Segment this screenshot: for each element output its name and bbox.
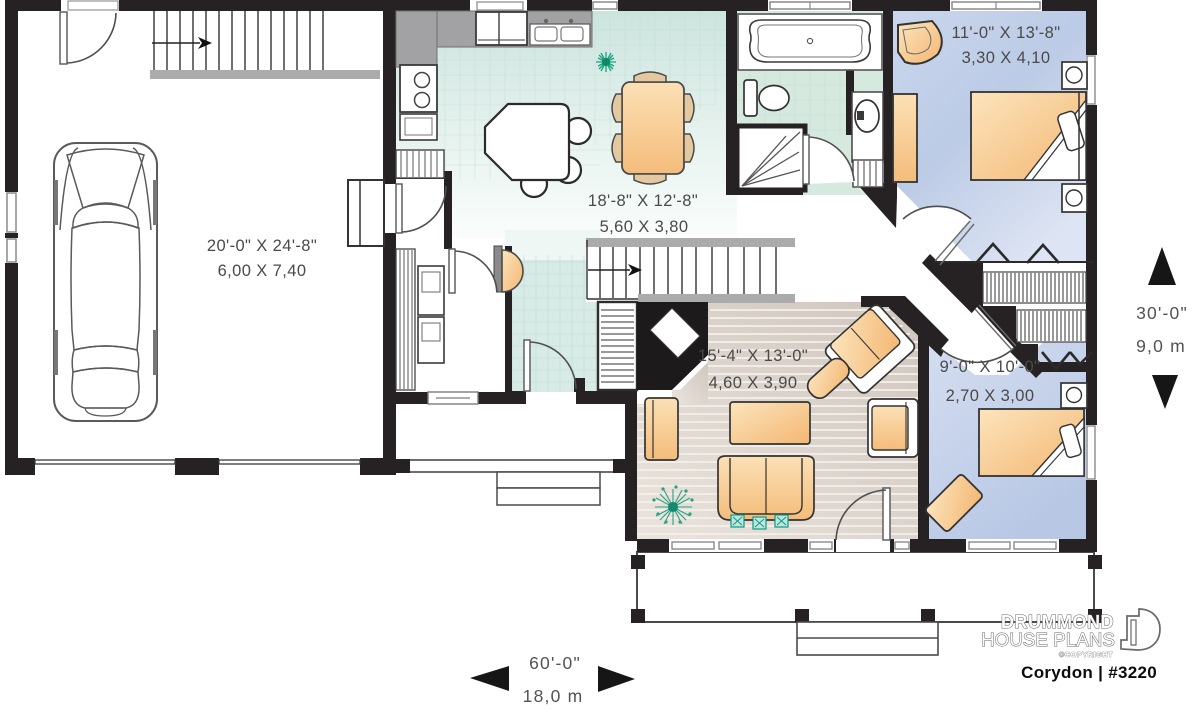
svg-text:HOUSE PLANS: HOUSE PLANS [981, 629, 1115, 650]
svg-text:Corydon | #3220: Corydon | #3220 [1021, 663, 1157, 682]
svg-text:2,70 X 3,00: 2,70 X 3,00 [946, 387, 1035, 405]
svg-text:4,60 X 3,90: 4,60 X 3,90 [709, 374, 798, 392]
svg-text:9,0 m: 9,0 m [1136, 336, 1186, 356]
svg-text:©COPYRIGHT: ©COPYRIGHT [1059, 650, 1113, 659]
svg-text:20'-0" X 24'-8": 20'-0" X 24'-8" [207, 237, 317, 255]
svg-text:9'-0" X 10'-0": 9'-0" X 10'-0" [940, 358, 1041, 376]
svg-text:18'-8" X 12'-8": 18'-8" X 12'-8" [588, 192, 698, 210]
svg-text:30'-0": 30'-0" [1136, 303, 1188, 323]
svg-text:5,60 X 3,80: 5,60 X 3,80 [600, 218, 689, 236]
svg-text:11'-0" X 13'-8": 11'-0" X 13'-8" [951, 24, 1060, 42]
svg-text:15'-4" X 13'-0": 15'-4" X 13'-0" [698, 347, 808, 365]
svg-text:60'-0": 60'-0" [529, 653, 581, 673]
svg-text:6,00 X 7,40: 6,00 X 7,40 [218, 262, 307, 280]
svg-text:3,30 X 4,10: 3,30 X 4,10 [962, 49, 1051, 67]
svg-text:18,0 m: 18,0 m [523, 686, 584, 706]
